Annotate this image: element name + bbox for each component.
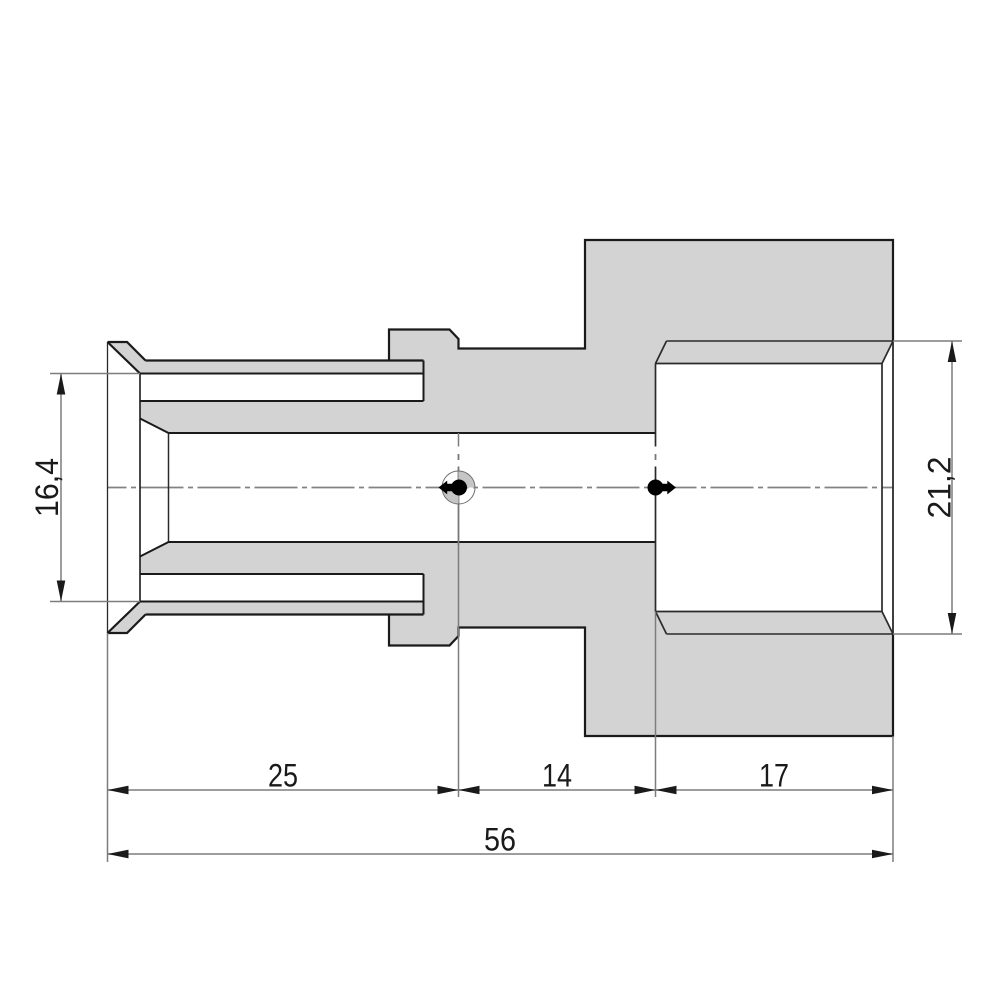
svg-text:16,4: 16,4 — [29, 458, 65, 517]
svg-text:17: 17 — [759, 758, 789, 794]
svg-text:21,2: 21,2 — [922, 457, 958, 519]
svg-text:14: 14 — [542, 758, 572, 794]
svg-text:56: 56 — [484, 822, 516, 858]
svg-text:25: 25 — [268, 758, 298, 794]
